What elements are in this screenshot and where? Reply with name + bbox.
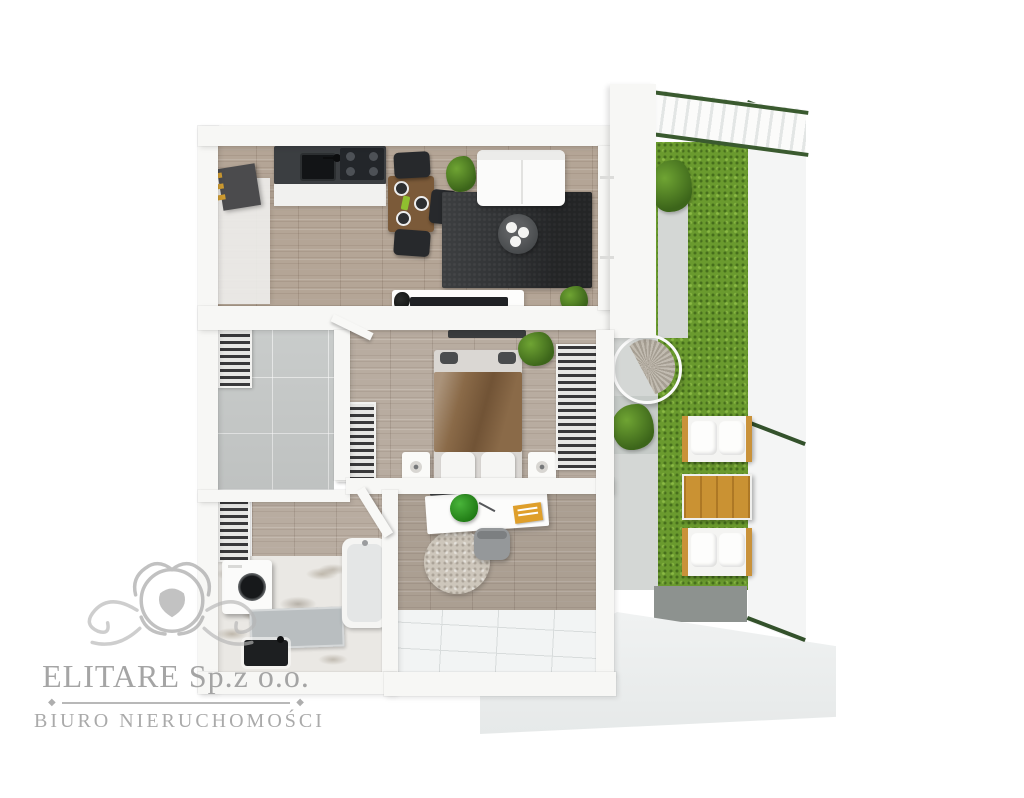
hall-closet xyxy=(218,322,252,388)
garden-path-dark xyxy=(654,586,747,622)
desk-chair xyxy=(474,528,510,560)
divider-rule xyxy=(62,702,291,704)
cooktop xyxy=(340,148,384,180)
dining-table xyxy=(388,176,434,232)
bed-blanket xyxy=(434,372,522,452)
notebook xyxy=(513,502,543,524)
bed-cushion xyxy=(498,352,516,364)
soundbar xyxy=(448,330,526,338)
dining-chair xyxy=(393,229,431,257)
wall-bedroom-left xyxy=(334,330,350,480)
wall-column xyxy=(610,84,656,338)
sofa xyxy=(477,150,565,206)
sofa-wood-trim xyxy=(746,416,752,462)
diamond-glyph: ◆ xyxy=(296,698,304,708)
bar-cabinet xyxy=(217,163,261,210)
sofa-cushion xyxy=(691,421,717,455)
outdoor-sofa xyxy=(682,528,752,576)
wall-middle xyxy=(198,306,614,330)
sofa-cushion xyxy=(719,421,745,455)
mesh-fence xyxy=(748,102,806,644)
sofa-wood-trim xyxy=(682,528,688,576)
sofa-cushion xyxy=(691,533,717,567)
diamond-glyph: ◆ xyxy=(48,698,56,708)
wall-right-lower xyxy=(596,330,614,676)
bed-cushion xyxy=(440,352,458,364)
balcony-door-sill xyxy=(600,176,614,179)
lion-crest-logo xyxy=(62,550,282,662)
floorplan-render: ELITARE Sp.z o.o. ◆ ◆ BIURO NIERUCHOMOŚC… xyxy=(0,0,1024,798)
watermark-divider: ◆ ◆ xyxy=(48,698,304,708)
hanging-egg-chair xyxy=(612,334,682,404)
agency-watermark: ELITARE Sp.z o.o. ◆ ◆ BIURO NIERUCHOMOŚC… xyxy=(34,550,318,750)
desk-plant xyxy=(450,494,478,522)
wall-top xyxy=(198,126,618,146)
company-name: ELITARE Sp.z o.o. xyxy=(34,658,318,695)
coffee-table xyxy=(498,214,538,254)
sofa-cushion xyxy=(719,533,745,567)
kitchen-cabinet-front xyxy=(274,184,386,206)
outdoor-sofa xyxy=(682,416,752,462)
sofa-wood-trim xyxy=(682,416,688,462)
sofa-wood-trim xyxy=(746,528,752,576)
garden-shrub xyxy=(612,404,654,450)
balcony-door-sill xyxy=(600,256,614,259)
potted-plant xyxy=(518,332,554,366)
palm-plant xyxy=(650,160,692,212)
outdoor-coffee-table xyxy=(682,474,752,520)
wall-hall-bath xyxy=(198,490,350,502)
agency-tagline: BIURO NIERUCHOMOŚCI xyxy=(34,710,318,733)
potted-plant xyxy=(446,156,476,192)
terrace-tiles xyxy=(386,610,612,674)
wall-terrace-bottom xyxy=(384,672,616,696)
dining-chair xyxy=(393,151,430,179)
